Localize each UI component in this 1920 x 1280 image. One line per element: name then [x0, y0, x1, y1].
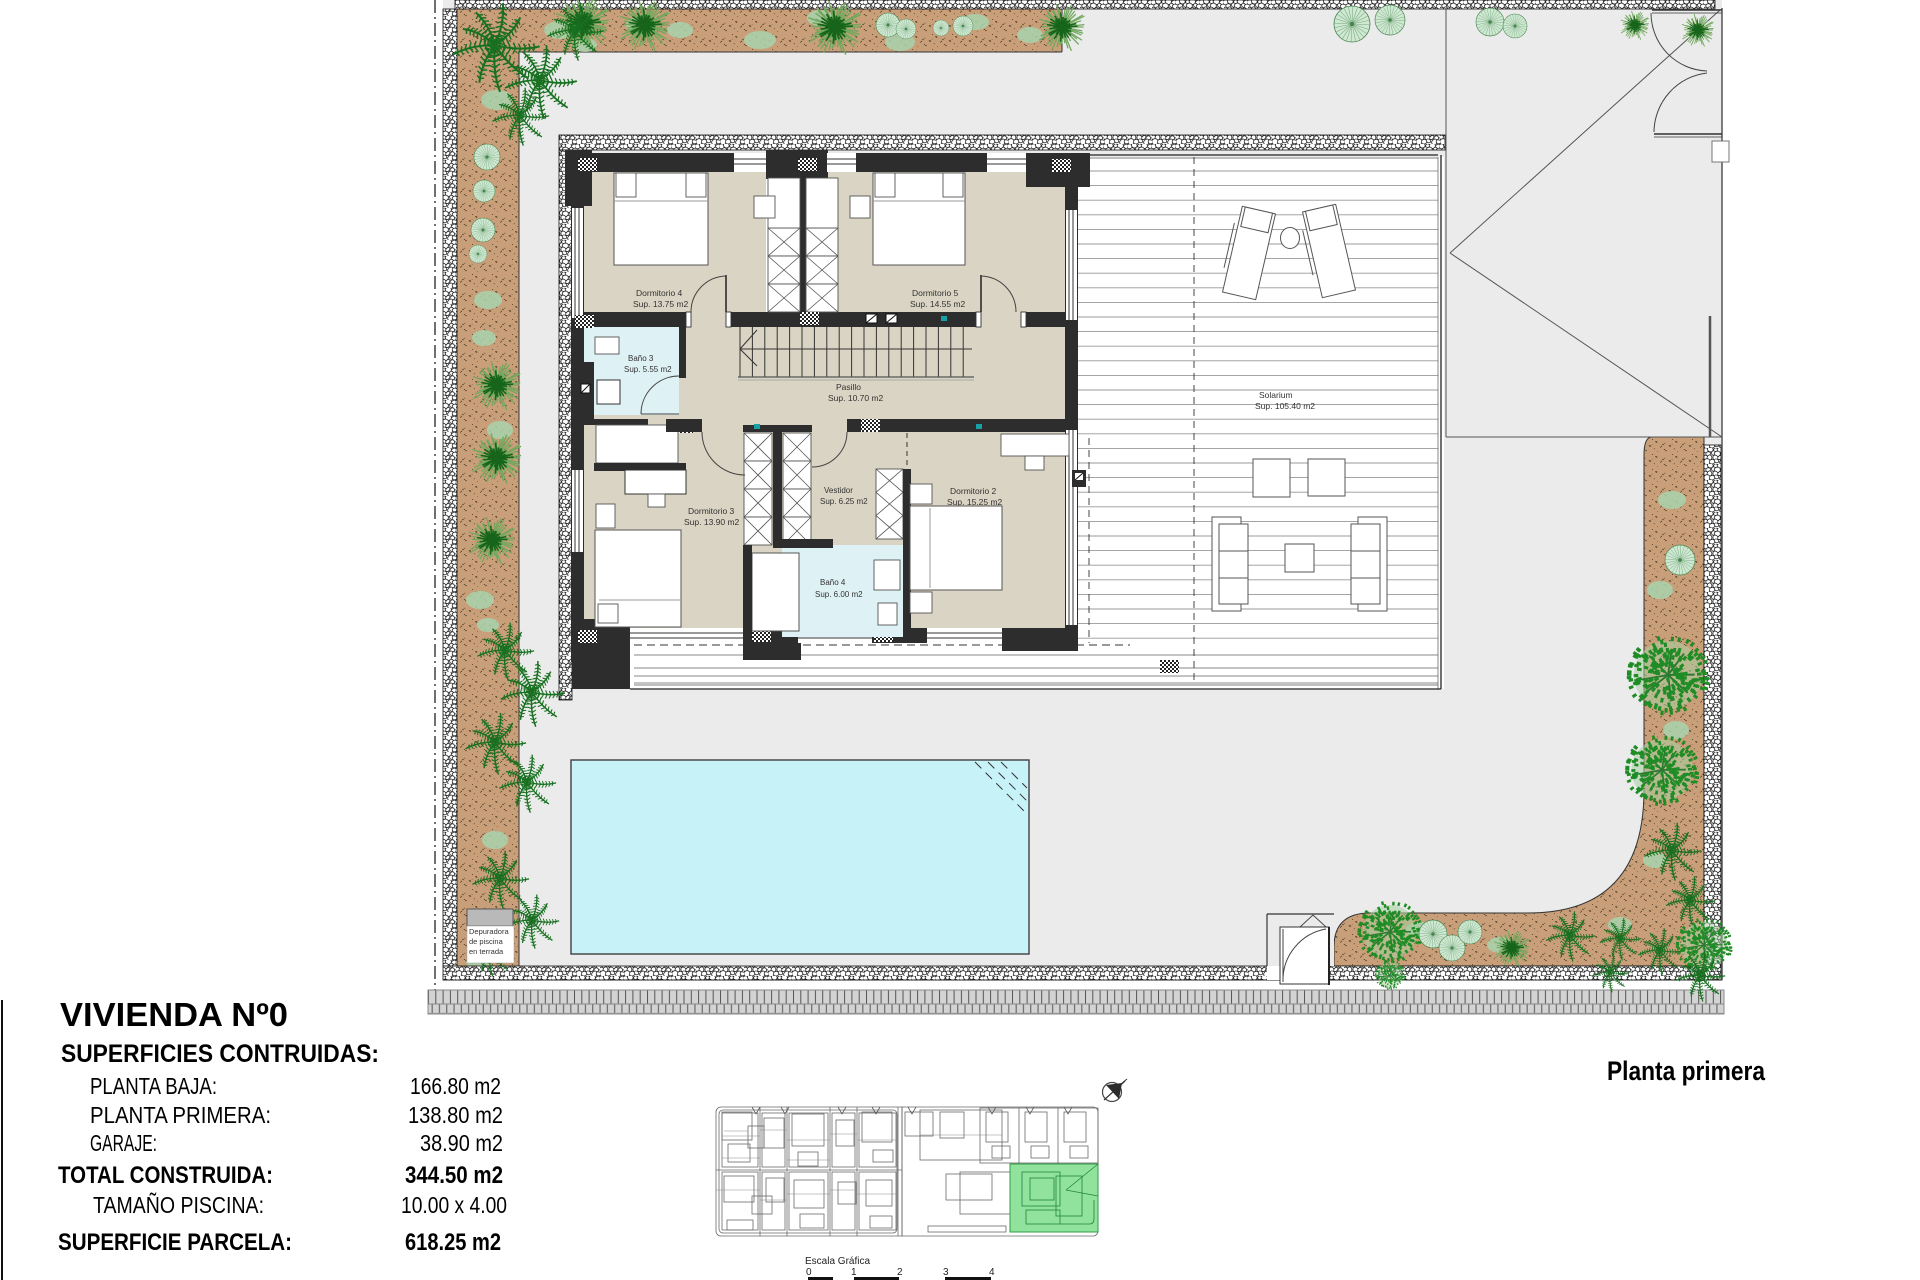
- svg-text:Solarium: Solarium: [1259, 390, 1293, 400]
- svg-text:Escala Gráfica: Escala Gráfica: [805, 1256, 870, 1267]
- svg-text:Sup. 105.40 m2: Sup. 105.40 m2: [1255, 401, 1315, 411]
- svg-text:Depuradora: Depuradora: [469, 927, 509, 936]
- svg-text:3: 3: [943, 1267, 949, 1278]
- svg-text:SUPERFICIE PARCELA:: SUPERFICIE PARCELA:: [58, 1229, 292, 1256]
- svg-text:TOTAL CONSTRUIDA:: TOTAL CONSTRUIDA:: [58, 1162, 273, 1189]
- svg-text:0: 0: [806, 1267, 812, 1278]
- svg-text:VIVIENDA Nº0: VIVIENDA Nº0: [60, 996, 288, 1033]
- svg-text:Pasillo: Pasillo: [836, 382, 861, 392]
- svg-text:Dormitorio 4: Dormitorio 4: [636, 288, 683, 298]
- svg-text:PLANTA PRIMERA:: PLANTA PRIMERA:: [90, 1102, 271, 1128]
- svg-text:1: 1: [851, 1267, 857, 1278]
- svg-text:166.80 m2: 166.80 m2: [410, 1073, 501, 1099]
- svg-text:Planta primera: Planta primera: [1607, 1056, 1766, 1086]
- svg-text:38.90 m2: 38.90 m2: [420, 1130, 503, 1156]
- svg-text:618.25 m2: 618.25 m2: [405, 1229, 501, 1256]
- svg-text:Sup. 5.55 m2: Sup. 5.55 m2: [624, 365, 672, 374]
- svg-text:4: 4: [989, 1267, 995, 1278]
- svg-text:Vestidor: Vestidor: [824, 486, 853, 495]
- svg-text:Sup. 6.25 m2: Sup. 6.25 m2: [820, 497, 868, 506]
- svg-text:de piscina: de piscina: [469, 937, 504, 946]
- svg-text:Sup. 13.90 m2: Sup. 13.90 m2: [684, 517, 740, 527]
- svg-text:Dormitorio 5: Dormitorio 5: [912, 288, 959, 298]
- svg-text:Baño 3: Baño 3: [628, 354, 654, 363]
- svg-text:Baño 4: Baño 4: [820, 578, 846, 587]
- svg-text:138.80 m2: 138.80 m2: [408, 1102, 503, 1128]
- svg-text:PLANTA BAJA:: PLANTA BAJA:: [90, 1073, 217, 1099]
- svg-text:344.50 m2: 344.50 m2: [405, 1162, 503, 1189]
- svg-text:Sup. 14.55 m2: Sup. 14.55 m2: [910, 299, 966, 309]
- svg-text:Sup. 6.00 m2: Sup. 6.00 m2: [815, 590, 863, 599]
- svg-text:SUPERFICIES CONTRUIDAS:: SUPERFICIES CONTRUIDAS:: [61, 1040, 379, 1068]
- svg-text:GARAJE:: GARAJE:: [90, 1130, 157, 1156]
- svg-text:en terrada: en terrada: [469, 947, 504, 956]
- svg-text:TAMAÑO PISCINA:: TAMAÑO PISCINA:: [93, 1192, 264, 1218]
- svg-text:Dormitorio 3: Dormitorio 3: [688, 506, 735, 516]
- svg-text:10.00 x 4.00: 10.00 x 4.00: [401, 1192, 507, 1218]
- svg-text:Sup. 10.70 m2: Sup. 10.70 m2: [828, 393, 884, 403]
- svg-text:Dormitorio 2: Dormitorio 2: [950, 486, 997, 496]
- svg-text:Sup. 13.75 m2: Sup. 13.75 m2: [633, 299, 689, 309]
- svg-text:2: 2: [897, 1267, 903, 1278]
